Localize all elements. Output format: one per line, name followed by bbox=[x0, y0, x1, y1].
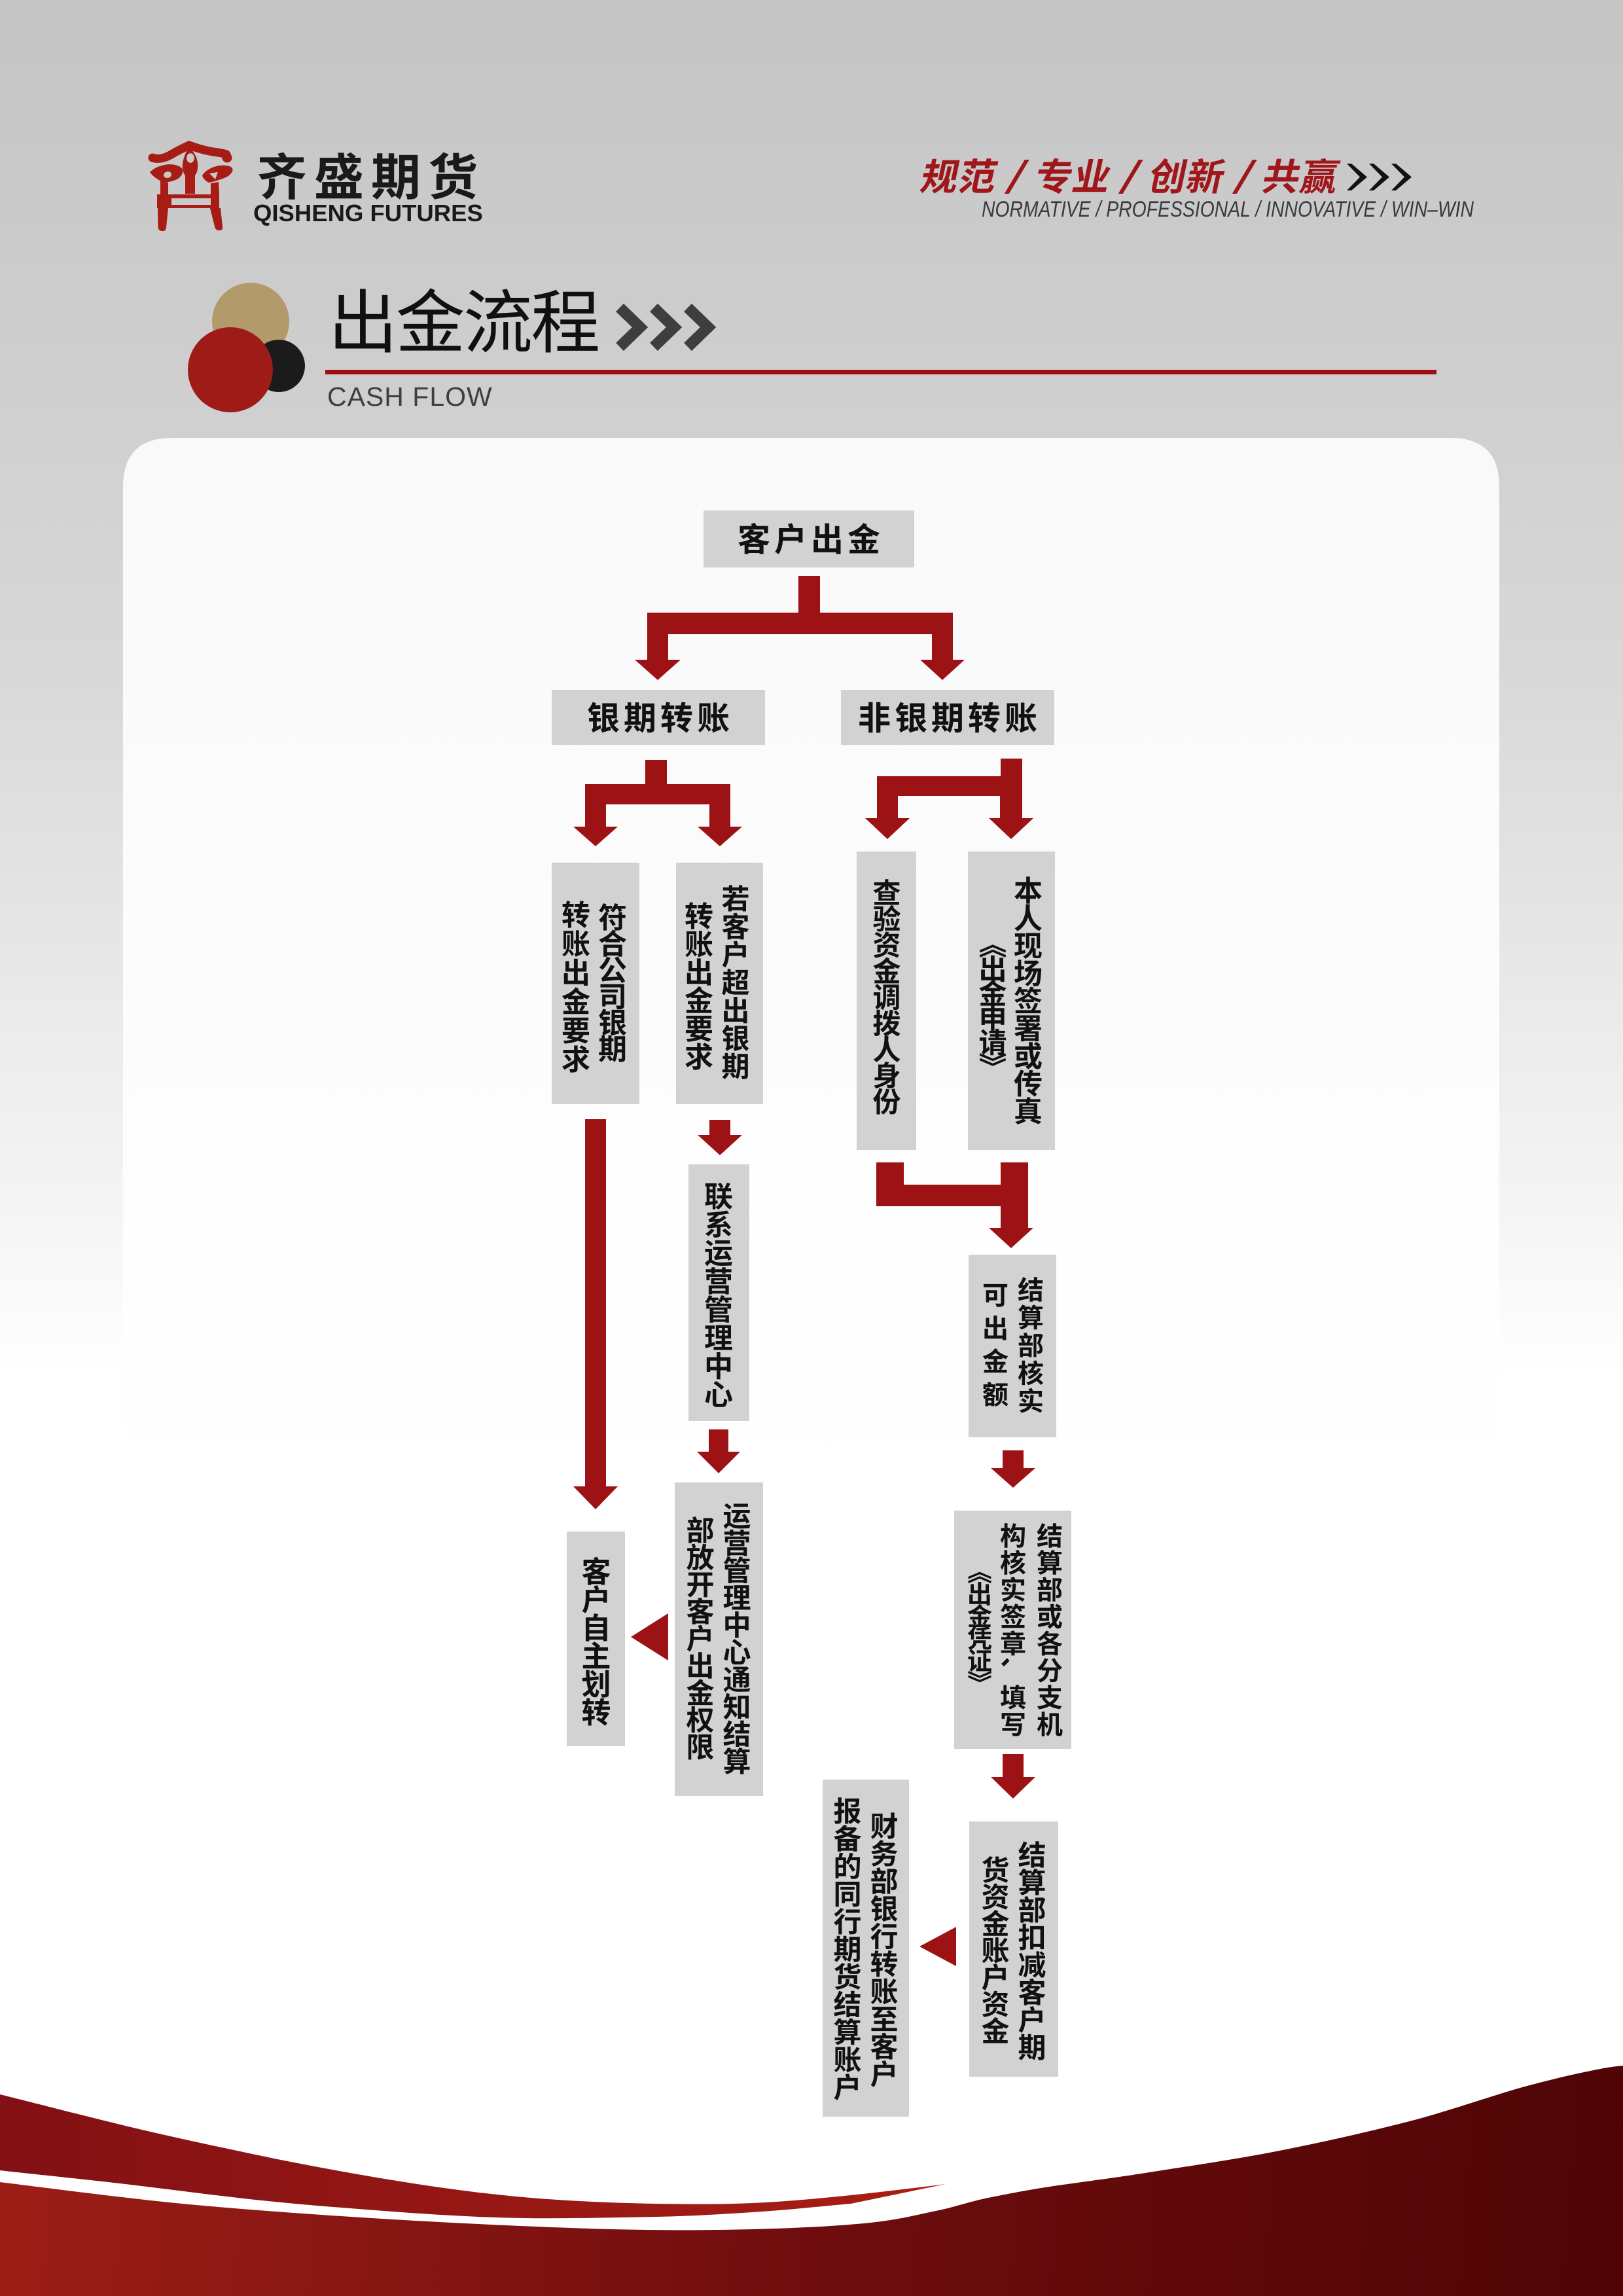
svg-text:CASH FLOW: CASH FLOW bbox=[327, 382, 493, 412]
svg-text:QISHENG FUTURES: QISHENG FUTURES bbox=[253, 200, 483, 226]
svg-text:NORMATIVE / PROFESSIONAL / INN: NORMATIVE / PROFESSIONAL / INNOVATIVE / … bbox=[982, 197, 1474, 222]
